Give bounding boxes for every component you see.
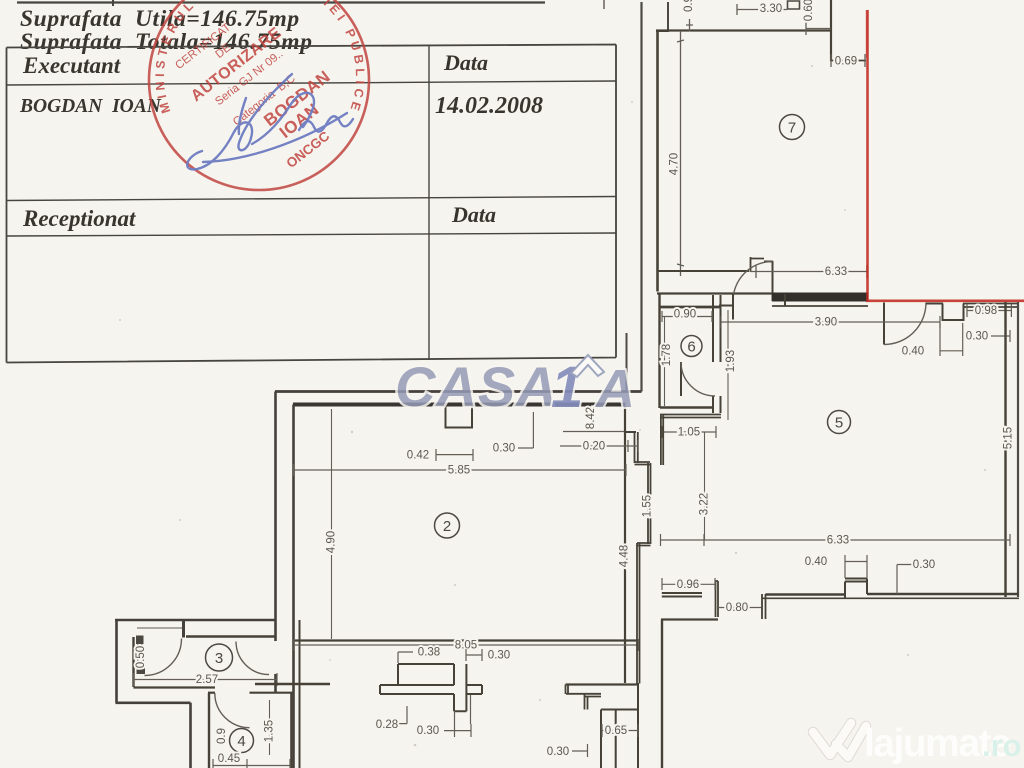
svg-text:0.9: 0.9 xyxy=(216,728,228,744)
svg-text:0.30: 0.30 xyxy=(488,650,510,662)
svg-text:0.28: 0.28 xyxy=(376,719,398,731)
svg-text:1.55: 1.55 xyxy=(642,495,654,517)
svg-text:3.22: 3.22 xyxy=(699,493,711,515)
svg-text:14.02.2008: 14.02.2008 xyxy=(435,93,543,119)
svg-text:Executant: Executant xyxy=(22,53,121,78)
svg-text:3.30: 3.30 xyxy=(760,3,782,15)
svg-text:5.15: 5.15 xyxy=(1003,427,1015,449)
svg-text:7: 7 xyxy=(788,120,796,137)
svg-text:1.35: 1.35 xyxy=(264,720,276,742)
svg-text:0.80: 0.80 xyxy=(726,602,748,614)
svg-text:0.90: 0.90 xyxy=(674,309,696,321)
svg-text:0.42: 0.42 xyxy=(407,450,429,462)
svg-text:Data: Data xyxy=(451,202,496,227)
svg-text:4: 4 xyxy=(237,733,245,750)
svg-text:4.70: 4.70 xyxy=(669,153,681,175)
svg-text:1.05: 1.05 xyxy=(678,427,700,439)
svg-text:0.30: 0.30 xyxy=(417,725,439,737)
svg-text:0.96: 0.96 xyxy=(677,579,699,591)
svg-text:4.90: 4.90 xyxy=(326,531,338,553)
svg-text:5: 5 xyxy=(835,415,843,432)
svg-text:0.30: 0.30 xyxy=(913,559,935,571)
svg-text:2.57: 2.57 xyxy=(196,674,218,686)
svg-text:0.65: 0.65 xyxy=(605,725,627,737)
svg-text:0.30: 0.30 xyxy=(966,331,988,343)
svg-text:0.50: 0.50 xyxy=(135,646,147,668)
svg-text:Receptionat: Receptionat xyxy=(22,206,136,231)
svg-text:3.90: 3.90 xyxy=(815,317,837,329)
svg-text:0.38: 0.38 xyxy=(418,647,440,659)
svg-text:0.30: 0.30 xyxy=(547,746,569,758)
svg-text:CASA: CASA xyxy=(395,355,558,418)
svg-text:0.20: 0.20 xyxy=(583,441,605,453)
svg-text:.ro: .ro xyxy=(982,728,1022,763)
svg-text:0.9: 0.9 xyxy=(683,0,695,12)
svg-text:4.48: 4.48 xyxy=(619,545,631,567)
svg-text:0.30: 0.30 xyxy=(493,443,515,455)
svg-text:0.98: 0.98 xyxy=(975,305,997,317)
svg-text:6.33: 6.33 xyxy=(825,266,847,278)
svg-text:2: 2 xyxy=(443,518,451,535)
svg-text:0.60: 0.60 xyxy=(803,0,815,21)
svg-text:Data: Data xyxy=(443,50,488,75)
svg-text:0.45: 0.45 xyxy=(218,753,240,765)
svg-text:3: 3 xyxy=(215,650,223,667)
svg-text:1.93: 1.93 xyxy=(725,350,737,372)
svg-text:6.33: 6.33 xyxy=(827,535,849,547)
svg-text:0.40: 0.40 xyxy=(805,556,827,568)
svg-text:6: 6 xyxy=(687,339,695,356)
svg-text:BOGDAN IOAN: BOGDAN IOAN xyxy=(19,96,162,117)
svg-text:1.78: 1.78 xyxy=(661,344,673,366)
svg-text:0.69: 0.69 xyxy=(835,56,857,68)
svg-text:5.85: 5.85 xyxy=(448,465,470,477)
svg-text:0.40: 0.40 xyxy=(902,346,924,358)
